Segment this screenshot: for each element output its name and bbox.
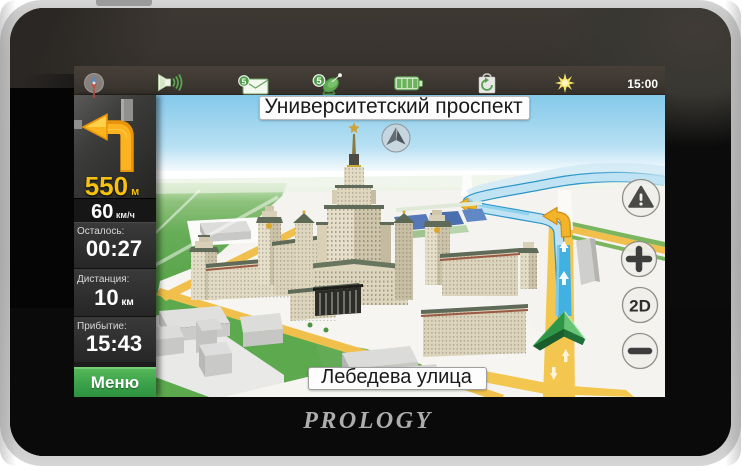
- svg-text:5: 5: [316, 76, 322, 87]
- svg-text:5: 5: [242, 76, 247, 86]
- svg-text:2D: 2D: [629, 297, 651, 316]
